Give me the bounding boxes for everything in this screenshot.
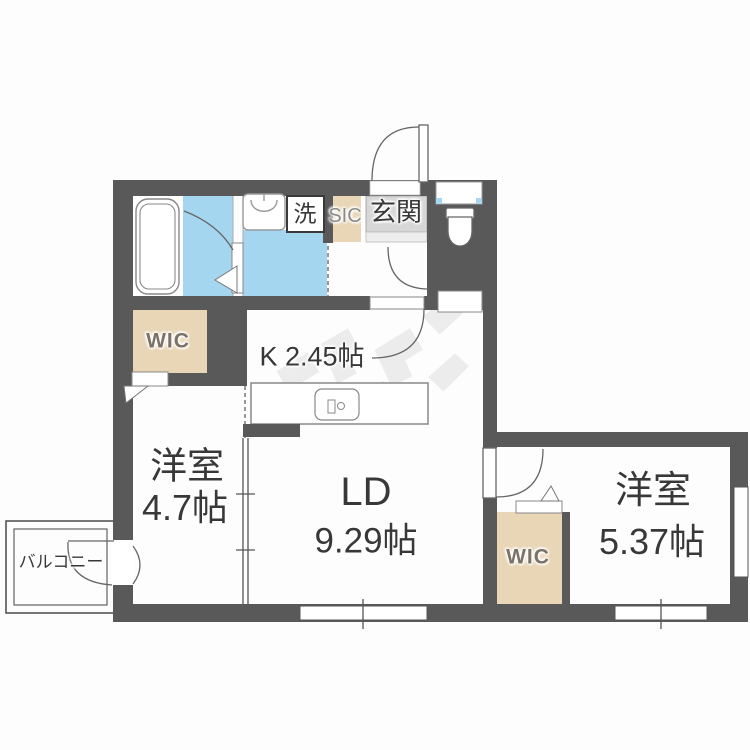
floorplan-drawing — [0, 0, 750, 750]
bathtub-icon — [136, 199, 179, 294]
western-room2-size: 5.37帖 — [599, 524, 705, 560]
wash-basin-icon — [243, 194, 285, 230]
wall-wic-left-bottom — [168, 373, 207, 386]
toilet-window — [436, 182, 482, 204]
balcony-doorway-gap — [112, 540, 134, 585]
wall-wic-left-east — [207, 308, 247, 386]
washroom-floor-blue — [243, 230, 327, 296]
hall-door-arc — [388, 247, 429, 289]
entrance-sill — [370, 181, 420, 195]
toilet-door — [438, 291, 482, 312]
wic-left-opening — [132, 372, 168, 386]
entrance-door-arc — [372, 127, 419, 181]
wic-left-door-triangle — [124, 386, 148, 403]
wall-ld-east — [483, 310, 497, 448]
entrance-step — [366, 232, 427, 242]
wic-right-label: WIC — [506, 547, 550, 568]
sic-label: SIC — [328, 206, 361, 226]
wic-right-door-triangle — [541, 486, 559, 501]
western-room1-name: 洋室 — [150, 448, 224, 485]
ld-name: LD — [340, 472, 391, 512]
kitchen-counter — [251, 383, 428, 424]
wic-left-label: WIC — [146, 331, 190, 352]
wall-wic-right-west — [483, 497, 497, 604]
balcony-door-arc-right — [133, 546, 140, 584]
wall-counter-stub — [243, 424, 300, 437]
wic-right-opening — [516, 501, 562, 513]
ld-size: 9.29帖 — [314, 524, 417, 559]
entrance-label: 玄関 — [370, 199, 422, 225]
room2-door-arc — [496, 449, 543, 497]
ld-door-leaf — [370, 297, 424, 309]
western-room1-size: 4.7帖 — [142, 490, 228, 526]
wall-room2-top — [497, 432, 748, 447]
kitchen-label: K 2.45帖 — [259, 344, 364, 371]
room2-side-window — [734, 487, 748, 577]
toilet-icon — [446, 208, 474, 246]
laundry-label: 洗 — [294, 203, 317, 226]
western-room2-name: 洋室 — [615, 472, 691, 510]
floorplan-canvas: 玄関 SIC 洗 WIC WIC バルコニー K 2.45帖 LD 9.29帖 … — [0, 0, 750, 750]
entrance-door-leaf — [419, 125, 428, 182]
room2-door-leaf — [483, 448, 496, 498]
wall-sanitary-bottom-a — [113, 296, 370, 310]
kitchen-sink-icon — [315, 389, 359, 420]
balcony-label: バルコニー — [19, 554, 104, 571]
wall-wic-right-east — [562, 512, 570, 604]
